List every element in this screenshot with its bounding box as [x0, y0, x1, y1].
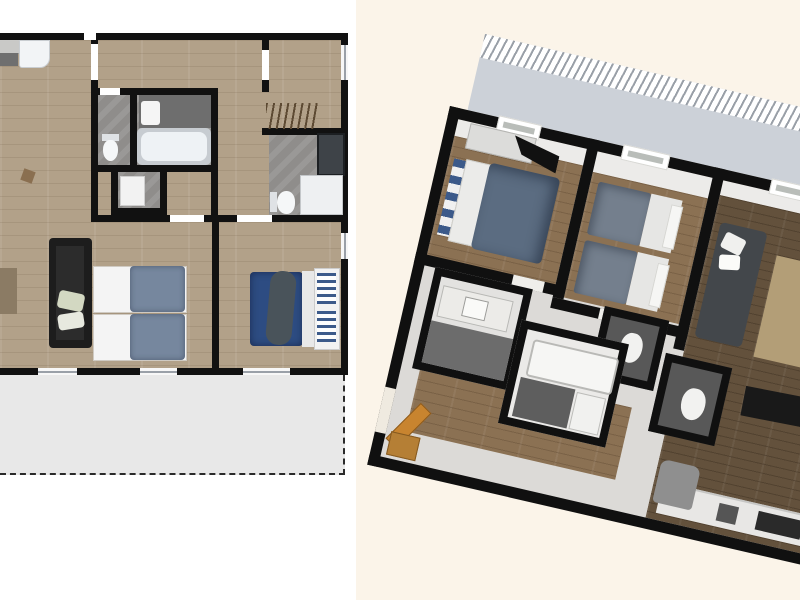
- duvet: [130, 314, 185, 360]
- wall: [98, 165, 211, 172]
- appliance: [716, 503, 740, 525]
- sink: [141, 101, 160, 125]
- bathtub-basin: [141, 132, 207, 161]
- window: [140, 368, 177, 375]
- door-opening: [170, 215, 204, 222]
- shower-tray: [120, 176, 145, 206]
- kitchen-cabinet: [0, 53, 18, 66]
- toilet: [270, 192, 277, 212]
- door-opening: [84, 33, 96, 40]
- window: [243, 368, 290, 375]
- mattress-edge: [302, 271, 314, 347]
- window: [341, 233, 348, 259]
- clothes-rail: [266, 103, 318, 129]
- wall: [211, 88, 218, 222]
- door-opening: [91, 44, 98, 80]
- window: [38, 368, 77, 375]
- terrace: [0, 375, 345, 475]
- duvet: [130, 266, 185, 312]
- shower-tray: [300, 175, 343, 215]
- door-opening: [100, 88, 120, 95]
- wall: [130, 95, 137, 172]
- toilet: [277, 191, 295, 214]
- striped-pillow: [317, 311, 336, 342]
- floor-plan-2d: [0, 0, 356, 600]
- wall: [111, 208, 167, 215]
- door-opening: [262, 50, 269, 80]
- toilet: [103, 140, 118, 161]
- glass-shower: [317, 133, 345, 176]
- wall: [212, 222, 219, 368]
- door-opening: [237, 215, 272, 222]
- refrigerator: [19, 40, 50, 68]
- side-table: [0, 268, 17, 314]
- wall: [0, 33, 348, 40]
- window: [341, 45, 348, 80]
- cooktop: [755, 511, 800, 540]
- wall: [91, 215, 348, 222]
- striped-pillow: [317, 273, 336, 304]
- pillow: [719, 254, 741, 270]
- washer: [568, 392, 606, 436]
- floor-plan-composite: [0, 0, 800, 600]
- toilet: [678, 386, 709, 423]
